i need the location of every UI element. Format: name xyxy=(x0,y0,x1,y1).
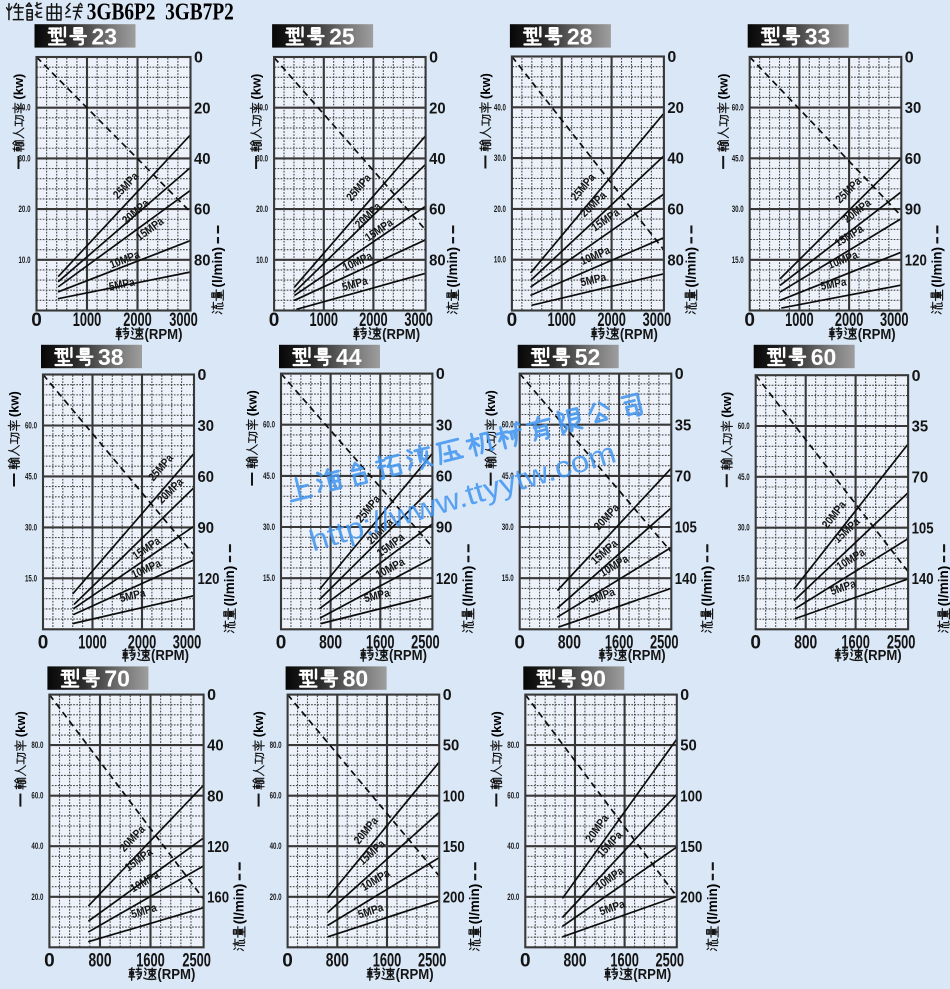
svg-text:60: 60 xyxy=(905,151,922,168)
svg-text:(kw): (kw) xyxy=(478,73,493,99)
svg-text:23: 23 xyxy=(92,24,118,50)
svg-text:90: 90 xyxy=(198,520,215,537)
svg-text:30.0: 30.0 xyxy=(502,522,514,533)
svg-text:90: 90 xyxy=(905,202,922,219)
svg-text:(l/min): (l/min) xyxy=(705,884,720,925)
svg-text:(RPM): (RPM) xyxy=(157,966,195,983)
svg-text:0: 0 xyxy=(194,50,203,67)
svg-text:105: 105 xyxy=(675,520,697,537)
svg-text:(RPM): (RPM) xyxy=(145,326,183,343)
svg-text:20.0: 20.0 xyxy=(31,892,43,903)
svg-text:60: 60 xyxy=(194,202,211,219)
svg-text:(RPM): (RPM) xyxy=(382,326,420,343)
svg-text:1000: 1000 xyxy=(78,633,107,654)
svg-text:0: 0 xyxy=(520,951,531,972)
svg-text:30.0: 30.0 xyxy=(25,522,37,533)
svg-text:(kw): (kw) xyxy=(245,390,260,416)
svg-text:0: 0 xyxy=(207,687,216,704)
svg-text:44: 44 xyxy=(336,344,362,370)
svg-text:140: 140 xyxy=(912,571,934,588)
svg-text:38: 38 xyxy=(98,344,124,370)
svg-text:52: 52 xyxy=(575,344,601,370)
svg-text:800: 800 xyxy=(89,951,112,972)
svg-text:30.0: 30.0 xyxy=(732,204,744,215)
svg-text:0: 0 xyxy=(276,633,287,654)
svg-text:(kw): (kw) xyxy=(13,711,28,737)
svg-text:60.0: 60.0 xyxy=(738,421,750,432)
svg-text:1000: 1000 xyxy=(547,310,576,331)
svg-text:0: 0 xyxy=(744,310,755,331)
svg-text:800: 800 xyxy=(564,951,587,972)
svg-text:40.0: 40.0 xyxy=(494,102,506,113)
svg-text:60: 60 xyxy=(198,469,215,486)
svg-text:800: 800 xyxy=(326,951,349,972)
svg-text:20: 20 xyxy=(667,100,684,117)
svg-text:80: 80 xyxy=(194,252,211,269)
svg-text:10.0: 10.0 xyxy=(256,255,268,266)
svg-text:80.0: 80.0 xyxy=(507,740,519,751)
svg-text:0: 0 xyxy=(514,633,525,654)
svg-text:60: 60 xyxy=(429,202,446,219)
svg-text:(RPM): (RPM) xyxy=(396,966,434,983)
svg-text:30: 30 xyxy=(905,100,922,117)
svg-text:60.0: 60.0 xyxy=(732,103,744,114)
svg-text:0: 0 xyxy=(675,366,684,383)
svg-text:30: 30 xyxy=(198,418,215,435)
svg-text:(kw): (kw) xyxy=(716,74,731,100)
svg-text:80.0: 80.0 xyxy=(31,740,43,751)
svg-text:80.0: 80.0 xyxy=(270,740,282,751)
svg-text:120: 120 xyxy=(436,571,458,588)
svg-text:80: 80 xyxy=(343,666,369,692)
svg-text:60.0: 60.0 xyxy=(502,420,514,431)
svg-text:10.0: 10.0 xyxy=(19,255,31,266)
svg-text:80: 80 xyxy=(207,788,224,805)
svg-text:(l/min): (l/min) xyxy=(460,566,475,607)
svg-text:35: 35 xyxy=(912,419,929,436)
svg-text:20.0: 20.0 xyxy=(507,892,519,903)
svg-text:(l/min): (l/min) xyxy=(936,566,950,607)
svg-text:(l/min): (l/min) xyxy=(699,566,714,607)
svg-text:40.0: 40.0 xyxy=(31,841,43,852)
svg-text:40: 40 xyxy=(194,151,211,168)
svg-text:100: 100 xyxy=(443,788,465,805)
svg-text:60.0: 60.0 xyxy=(263,420,275,431)
svg-text:15.0: 15.0 xyxy=(25,573,37,584)
svg-text:(l/min): (l/min) xyxy=(929,247,944,288)
svg-text:150: 150 xyxy=(443,839,465,856)
svg-text:0: 0 xyxy=(31,310,42,331)
svg-text:(RPM): (RPM) xyxy=(858,326,896,343)
svg-text:15.0: 15.0 xyxy=(738,574,750,585)
svg-text:(kw): (kw) xyxy=(251,711,266,737)
svg-text:140: 140 xyxy=(675,571,697,588)
svg-text:20.0: 20.0 xyxy=(256,204,268,215)
svg-text:(l/min): (l/min) xyxy=(222,566,237,607)
svg-text:70: 70 xyxy=(912,469,929,486)
svg-text:3GB6P2 3GB7P2: 3GB6P2 3GB7P2 xyxy=(87,0,234,26)
svg-text:120: 120 xyxy=(207,839,229,856)
svg-text:45.0: 45.0 xyxy=(732,153,744,164)
svg-text:(kw): (kw) xyxy=(483,390,498,416)
svg-text:80: 80 xyxy=(429,252,446,269)
svg-text:150: 150 xyxy=(680,839,702,856)
svg-text:0: 0 xyxy=(436,366,445,383)
svg-text:70: 70 xyxy=(104,666,130,692)
svg-text:80: 80 xyxy=(667,252,684,269)
svg-text:0: 0 xyxy=(443,687,452,704)
svg-text:(kw): (kw) xyxy=(7,391,22,417)
svg-text:(RPM): (RPM) xyxy=(864,647,902,664)
svg-text:120: 120 xyxy=(198,571,220,588)
svg-text:1000: 1000 xyxy=(73,310,102,331)
svg-text:20.0: 20.0 xyxy=(19,204,31,215)
svg-text:30: 30 xyxy=(436,417,453,434)
svg-text:0: 0 xyxy=(282,951,293,972)
svg-text:70: 70 xyxy=(675,469,692,486)
svg-text:60: 60 xyxy=(667,202,684,219)
svg-text:(kw): (kw) xyxy=(249,74,264,100)
svg-text:60.0: 60.0 xyxy=(31,791,43,802)
svg-text:105: 105 xyxy=(912,520,934,537)
svg-text:60.0: 60.0 xyxy=(507,791,519,802)
svg-text:60: 60 xyxy=(811,344,837,370)
svg-text:30.0: 30.0 xyxy=(494,153,506,164)
svg-text:60.0: 60.0 xyxy=(270,791,282,802)
svg-text:20.0: 20.0 xyxy=(270,892,282,903)
svg-text:33: 33 xyxy=(805,24,831,50)
svg-text:(RPM): (RPM) xyxy=(620,326,658,343)
svg-text:0: 0 xyxy=(44,951,55,972)
svg-text:45.0: 45.0 xyxy=(738,472,750,483)
svg-text:0: 0 xyxy=(667,49,676,66)
svg-text:45.0: 45.0 xyxy=(25,471,37,482)
svg-text:(RPM): (RPM) xyxy=(628,647,666,664)
svg-text:100: 100 xyxy=(680,788,702,805)
svg-text:0: 0 xyxy=(429,50,438,67)
svg-text:(l/min): (l/min) xyxy=(210,247,225,288)
svg-text:(RPM): (RPM) xyxy=(151,647,189,664)
svg-text:(kw): (kw) xyxy=(719,392,734,418)
svg-text:20.0: 20.0 xyxy=(494,204,506,215)
svg-text:800: 800 xyxy=(319,633,342,654)
svg-text:0: 0 xyxy=(507,310,518,331)
svg-text:0: 0 xyxy=(680,687,689,704)
svg-text:0: 0 xyxy=(269,310,280,331)
svg-text:(RPM): (RPM) xyxy=(389,647,427,664)
svg-text:0: 0 xyxy=(905,50,914,67)
svg-text:15.0: 15.0 xyxy=(732,255,744,266)
svg-text:10.0: 10.0 xyxy=(494,255,506,266)
svg-text:40: 40 xyxy=(207,738,224,755)
svg-text:(kw): (kw) xyxy=(489,711,504,737)
svg-text:40: 40 xyxy=(667,151,684,168)
svg-text:40: 40 xyxy=(429,151,446,168)
svg-text:90: 90 xyxy=(436,520,453,537)
svg-text:800: 800 xyxy=(558,633,581,654)
svg-text:15.0: 15.0 xyxy=(502,573,514,584)
svg-text:90: 90 xyxy=(580,666,606,692)
svg-text:0: 0 xyxy=(38,633,49,654)
svg-text:40.0: 40.0 xyxy=(507,841,519,852)
svg-text:0: 0 xyxy=(912,368,921,385)
svg-text:(l/min): (l/min) xyxy=(445,247,460,288)
svg-text:200: 200 xyxy=(443,889,465,906)
svg-text:(RPM): (RPM) xyxy=(633,966,671,983)
svg-text:120: 120 xyxy=(905,252,927,269)
svg-text:(l/min): (l/min) xyxy=(683,247,698,288)
svg-text:(kw): (kw) xyxy=(11,74,26,100)
svg-text:800: 800 xyxy=(794,633,817,654)
svg-text:30.0: 30.0 xyxy=(19,153,31,164)
svg-text:28: 28 xyxy=(567,24,593,50)
svg-text:20: 20 xyxy=(429,100,446,117)
svg-text:200: 200 xyxy=(680,889,702,906)
svg-text:35: 35 xyxy=(675,417,692,434)
svg-text:45.0: 45.0 xyxy=(263,471,275,482)
svg-text:0: 0 xyxy=(750,633,761,654)
svg-text:(l/min): (l/min) xyxy=(467,884,482,925)
svg-text:1000: 1000 xyxy=(785,310,814,331)
svg-text:30.0: 30.0 xyxy=(263,522,275,533)
svg-text:30.0: 30.0 xyxy=(256,153,268,164)
svg-text:1000: 1000 xyxy=(310,310,339,331)
svg-text:20: 20 xyxy=(194,100,211,117)
svg-text:60.0: 60.0 xyxy=(25,421,37,432)
svg-text:40.0: 40.0 xyxy=(270,841,282,852)
svg-text:15.0: 15.0 xyxy=(263,573,275,584)
svg-text:160: 160 xyxy=(207,889,229,906)
svg-text:0: 0 xyxy=(198,367,207,384)
svg-text:50: 50 xyxy=(443,738,460,755)
svg-text:(l/min): (l/min) xyxy=(232,884,247,925)
svg-text:50: 50 xyxy=(680,738,697,755)
svg-text:30.0: 30.0 xyxy=(738,523,750,534)
svg-text:25: 25 xyxy=(329,24,355,50)
